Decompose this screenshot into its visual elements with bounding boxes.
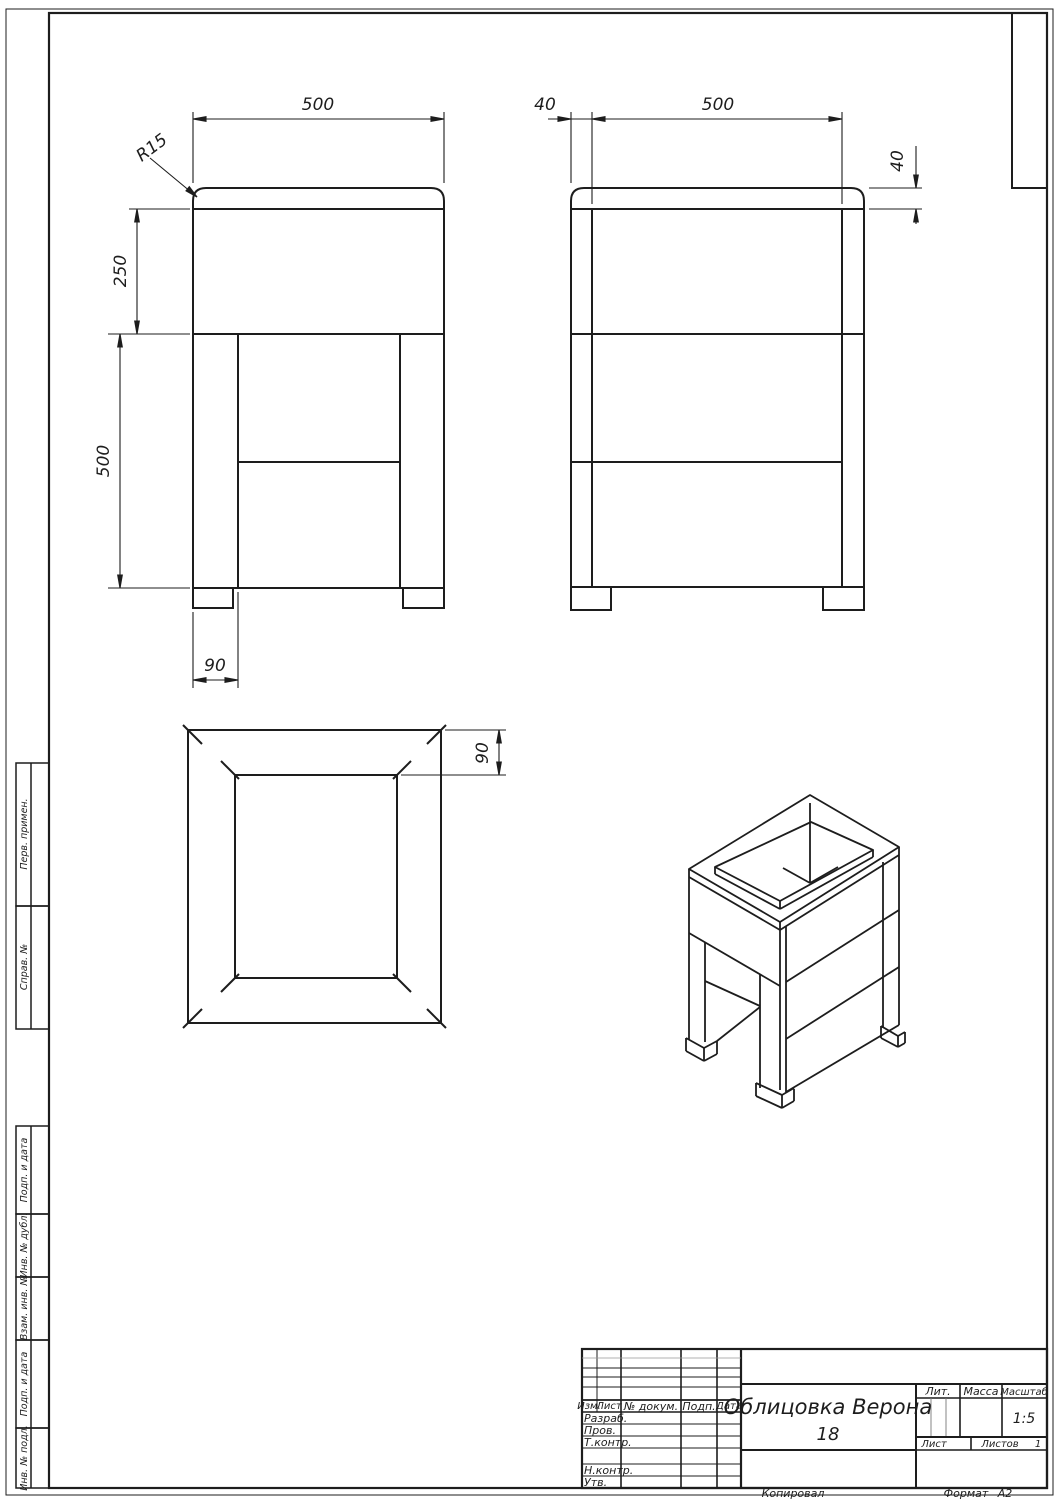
dim-side-left-offset: 40 [534, 95, 556, 115]
tb-row-utv: Утв. [584, 1476, 607, 1489]
main-frame-border [49, 13, 1047, 1488]
isometric-view [686, 795, 905, 1108]
tb-listov-label: Листов [980, 1439, 1018, 1450]
dim-front-top-height: 250 [111, 255, 131, 287]
top-right-designation-box [1012, 13, 1047, 188]
tb-format-label: Формат [944, 1487, 989, 1500]
stamp-inv-dubl-label: Инв. № дубл. [19, 1213, 30, 1278]
dim-front-radius: R15 [133, 130, 172, 166]
tb-col-podp: Подп. [682, 1400, 715, 1413]
front-left-foot [193, 588, 233, 608]
side-outline [571, 188, 864, 587]
stamp-perv-primen-label: Перв. примен. [19, 798, 30, 869]
dim-front-width: 500 [302, 95, 334, 115]
margin-stamp-labels: Перв. примен. Справ. № Подп. и дата Инв.… [19, 798, 30, 1490]
side-right-foot [823, 587, 864, 610]
front-right-foot [403, 588, 444, 608]
page-edge-border [6, 9, 1053, 1495]
side-left-foot [571, 587, 611, 610]
sheet-frame [6, 9, 1053, 1495]
tb-masshtab-label: Масштаб [1000, 1386, 1048, 1398]
tb-list-label: Лист [920, 1439, 948, 1450]
tb-row-tkontr: Т.контр. [584, 1436, 632, 1449]
title-block-texts: Изм. Лист № докум. Подп. Дата Разраб. Пр… [577, 1385, 1048, 1500]
tb-format-value: А2 [997, 1487, 1013, 1500]
iso-front-foot [756, 1083, 794, 1108]
tb-col-list: Лист [595, 1401, 623, 1412]
tb-massa-label: Масса [963, 1385, 998, 1398]
side-view [571, 188, 864, 610]
dim-top-frame-border: 90 [473, 742, 493, 764]
tb-drawing-title: Облицовка Верона [724, 1395, 932, 1419]
stamp-sprav-no-label: Справ. № [19, 944, 30, 990]
front-view [193, 188, 444, 608]
stamp-podp-data1-label: Подп. и дата [19, 1137, 30, 1202]
dim-front-leg-width: 90 [204, 656, 226, 676]
iso-left-foot [686, 1038, 717, 1061]
tb-sheets-total: 1 [1035, 1439, 1041, 1450]
side-view-dim-texts: 40 500 40 [534, 95, 908, 172]
tb-kopiroval: Копировал [762, 1487, 825, 1500]
drawing-sheet: Перв. примен. Справ. № Подп. и дата Инв.… [0, 0, 1060, 1500]
top-outer-rect [188, 730, 441, 1023]
tb-col-doc: № докум. [623, 1400, 678, 1413]
dim-side-top-thickness: 40 [888, 150, 908, 172]
stamp-vzam-inv-label: Взам. инв. № [19, 1276, 30, 1341]
stamp-podp-data2-label: Подп. и дата [19, 1351, 30, 1416]
dim-front-leg-height: 500 [94, 445, 114, 477]
dim-side-width: 500 [702, 95, 734, 115]
top-inner-rect [235, 775, 397, 978]
drawing-canvas: Перв. примен. Справ. № Подп. и дата Инв.… [0, 0, 1060, 1500]
top-view [183, 725, 446, 1028]
top-view-dim-texts: 90 [473, 742, 493, 764]
tb-drawing-number: 18 [817, 1424, 840, 1445]
side-view-dimensions [548, 112, 922, 224]
stamp-inv-podl-label: Инв. № подл. [19, 1425, 30, 1491]
front-view-dimensions [108, 112, 444, 688]
tb-scale-value: 1:5 [1013, 1411, 1036, 1427]
